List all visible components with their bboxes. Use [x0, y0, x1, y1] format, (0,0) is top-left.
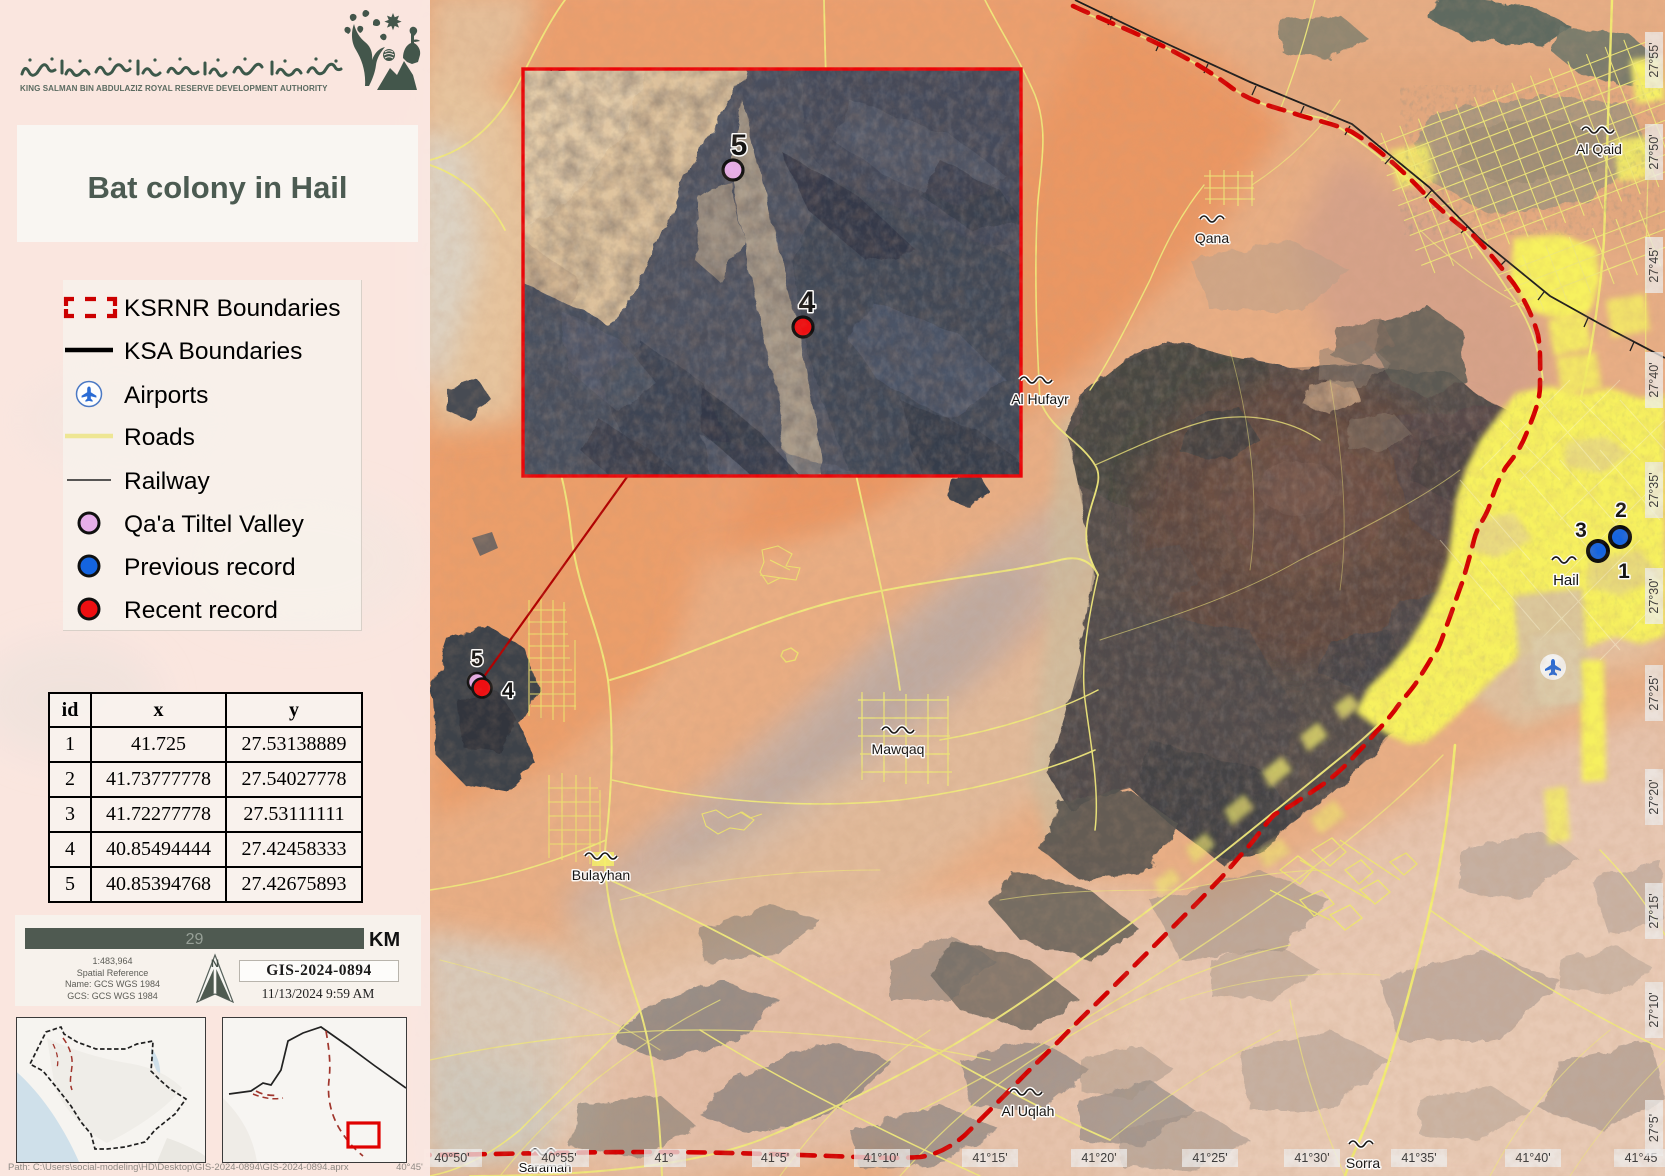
svg-text:Railway: Railway	[124, 468, 211, 495]
svg-text:Qa'a Tiltel Valley: Qa'a Tiltel Valley	[124, 511, 305, 538]
svg-text:Previous record: Previous record	[124, 554, 296, 581]
svg-text:KSA Boundaries: KSA Boundaries	[124, 338, 302, 365]
svg-text:Recent record: Recent record	[124, 597, 278, 624]
svg-text:Roads: Roads	[124, 424, 195, 451]
svg-text:Airports: Airports	[124, 382, 208, 409]
svg-text:KSRNR Boundaries: KSRNR Boundaries	[124, 295, 341, 322]
svg-text:N: N	[211, 958, 219, 970]
